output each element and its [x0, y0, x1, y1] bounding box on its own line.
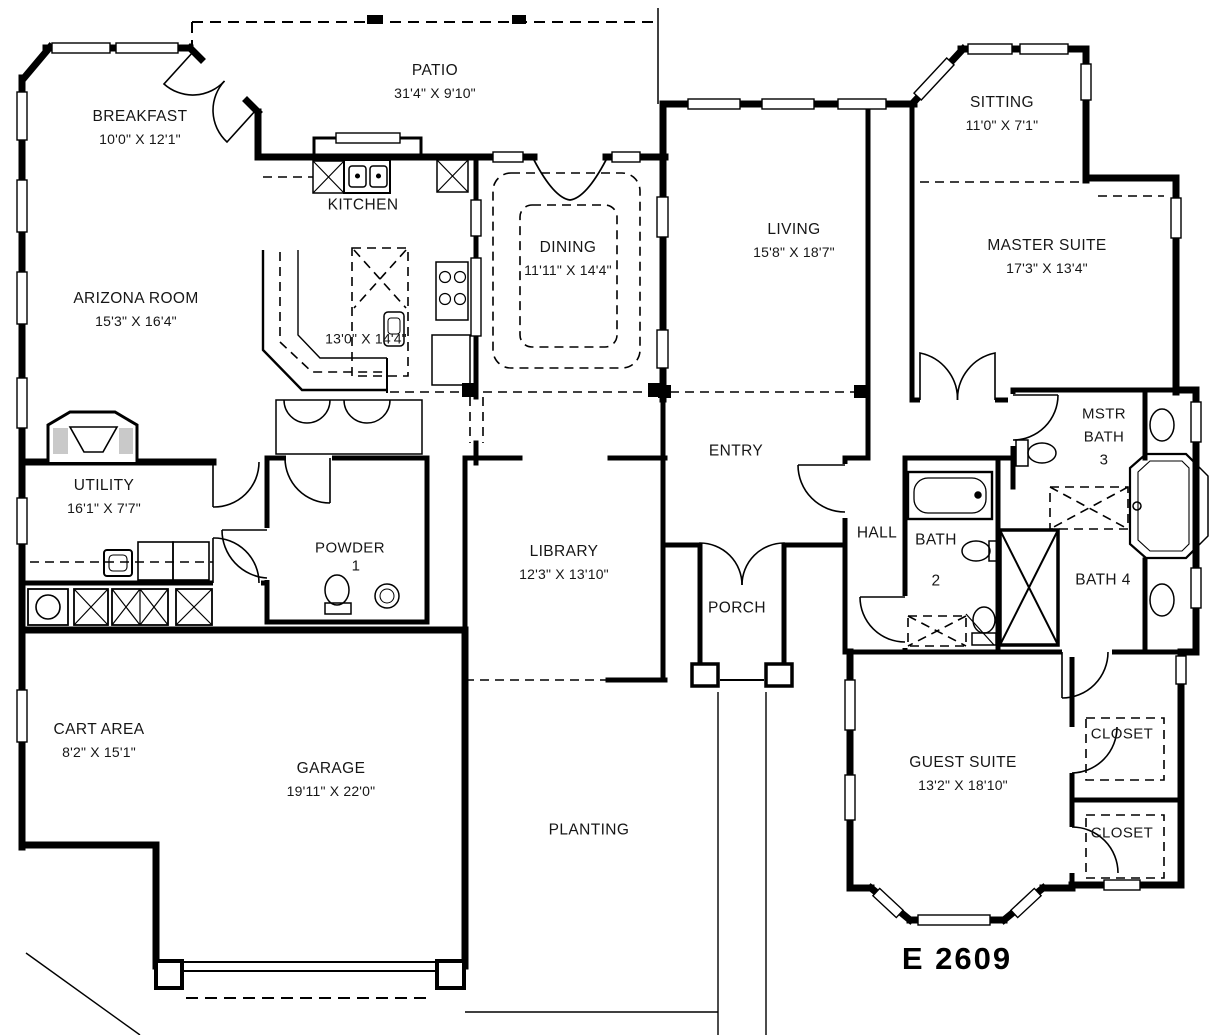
room-name: GUEST SUITE [909, 751, 1016, 774]
room-label-arizona-room: ARIZONA ROOM 15'3" X 16'4" [73, 287, 198, 333]
room-name: ENTRY [709, 440, 763, 463]
room-name: PORCH [708, 597, 766, 620]
room-number: 1 [352, 555, 361, 578]
room-label-mstr-bath: MSTR BATH 3 [1082, 403, 1126, 472]
room-dims: 8'2" X 15'1" [54, 741, 145, 764]
bath2-fixtures [908, 472, 998, 645]
room-dims: 15'8" X 18'7" [753, 241, 835, 264]
dining-arch [534, 160, 606, 200]
room-name: PATIO [394, 59, 476, 82]
room-name: DINING [524, 236, 612, 259]
room-label-master-suite: MASTER SUITE 17'3" X 13'4" [987, 234, 1106, 280]
room-name: BATH 4 [1075, 569, 1131, 592]
plan-number: E 2609 [902, 941, 1012, 977]
room-dims: 15'3" X 16'4" [73, 310, 198, 333]
floor-plan-drawing [0, 0, 1212, 1035]
room-dims: 19'11" X 22'0" [287, 780, 376, 803]
room-name: MASTER SUITE [987, 234, 1106, 257]
room-name: ARIZONA ROOM [73, 287, 198, 310]
room-name: PLANTING [549, 819, 630, 842]
room-label-bath4: BATH 4 [1075, 569, 1131, 592]
room-name: UTILITY [67, 474, 141, 497]
room-name: BATH [915, 529, 957, 552]
room-label-kitchen: KITCHEN [328, 194, 399, 217]
fireplace [48, 412, 137, 462]
column-posts [462, 383, 867, 398]
room-label-kitchen-dims: 13'0" X 14'4" [325, 328, 407, 351]
room-label-guest-suite: GUEST SUITE 13'2" X 18'10" [909, 751, 1016, 797]
room-label-cart-area: CART AREA 8'2" X 15'1" [54, 718, 145, 764]
room-label-closet-lower: CLOSET [1091, 822, 1153, 845]
room-name: LIVING [753, 218, 835, 241]
room-dims: 17'3" X 13'4" [987, 257, 1106, 280]
room-label-bath2: BATH [915, 529, 957, 552]
room-label-closet-upper: CLOSET [1091, 723, 1153, 746]
room-label-sitting: SITTING 11'0" X 7'1" [966, 91, 1039, 137]
room-dims: 13'0" X 14'4" [325, 328, 407, 351]
patio-outline [192, 22, 658, 46]
room-name-line1: MSTR [1082, 403, 1126, 426]
kitchen-bump-window [336, 133, 400, 143]
room-name: CART AREA [54, 718, 145, 741]
room-name: KITCHEN [328, 194, 399, 217]
windows [17, 43, 1201, 925]
closet-alcove [276, 400, 422, 454]
room-dims: 12'3" X 13'10" [519, 563, 609, 586]
room-label-living: LIVING 15'8" X 18'7" [753, 218, 835, 264]
room-name: LIBRARY [519, 540, 609, 563]
room-name: HALL [857, 522, 897, 545]
room-label-breakfast: BREAKFAST 10'0" X 12'1" [93, 105, 188, 151]
room-dims: 31'4" X 9'10" [394, 82, 476, 105]
room-label-utility: UTILITY 16'1" X 7'7" [67, 474, 141, 520]
room-label-dining: DINING 11'11" X 14'4" [524, 236, 612, 282]
room-label-bath2-number: 2 [931, 570, 940, 593]
powder-fixtures [325, 575, 399, 614]
room-name: SITTING [966, 91, 1039, 114]
room-label-entry: ENTRY [709, 440, 763, 463]
garage-door [156, 961, 464, 998]
room-dims: 10'0" X 12'1" [93, 128, 188, 151]
porch-details [692, 664, 792, 686]
room-label-hall: HALL [857, 522, 897, 545]
room-dims: 11'0" X 7'1" [966, 114, 1039, 137]
room-dims: 16'1" X 7'7" [67, 497, 141, 520]
room-name-line2: BATH [1082, 426, 1126, 449]
room-number: 3 [1082, 449, 1126, 472]
room-name: BREAKFAST [93, 105, 188, 128]
room-name: CLOSET [1091, 723, 1153, 746]
room-label-powder-number: 1 [352, 555, 361, 578]
room-label-planting: PLANTING [549, 819, 630, 842]
floor-plan-page: BREAKFAST 10'0" X 12'1" PATIO 31'4" X 9'… [0, 0, 1212, 1035]
room-name: GARAGE [287, 757, 376, 780]
room-label-patio: PATIO 31'4" X 9'10" [394, 59, 476, 105]
room-name: POWDER [315, 537, 385, 560]
room-label-powder: POWDER [315, 537, 385, 560]
room-label-porch: PORCH [708, 597, 766, 620]
room-dims: 11'11" X 14'4" [524, 259, 612, 282]
room-label-garage: GARAGE 19'11" X 22'0" [287, 757, 376, 803]
room-label-library: LIBRARY 12'3" X 13'10" [519, 540, 609, 586]
room-dims: 13'2" X 18'10" [909, 774, 1016, 797]
room-number: 2 [931, 570, 940, 593]
room-name: CLOSET [1091, 822, 1153, 845]
